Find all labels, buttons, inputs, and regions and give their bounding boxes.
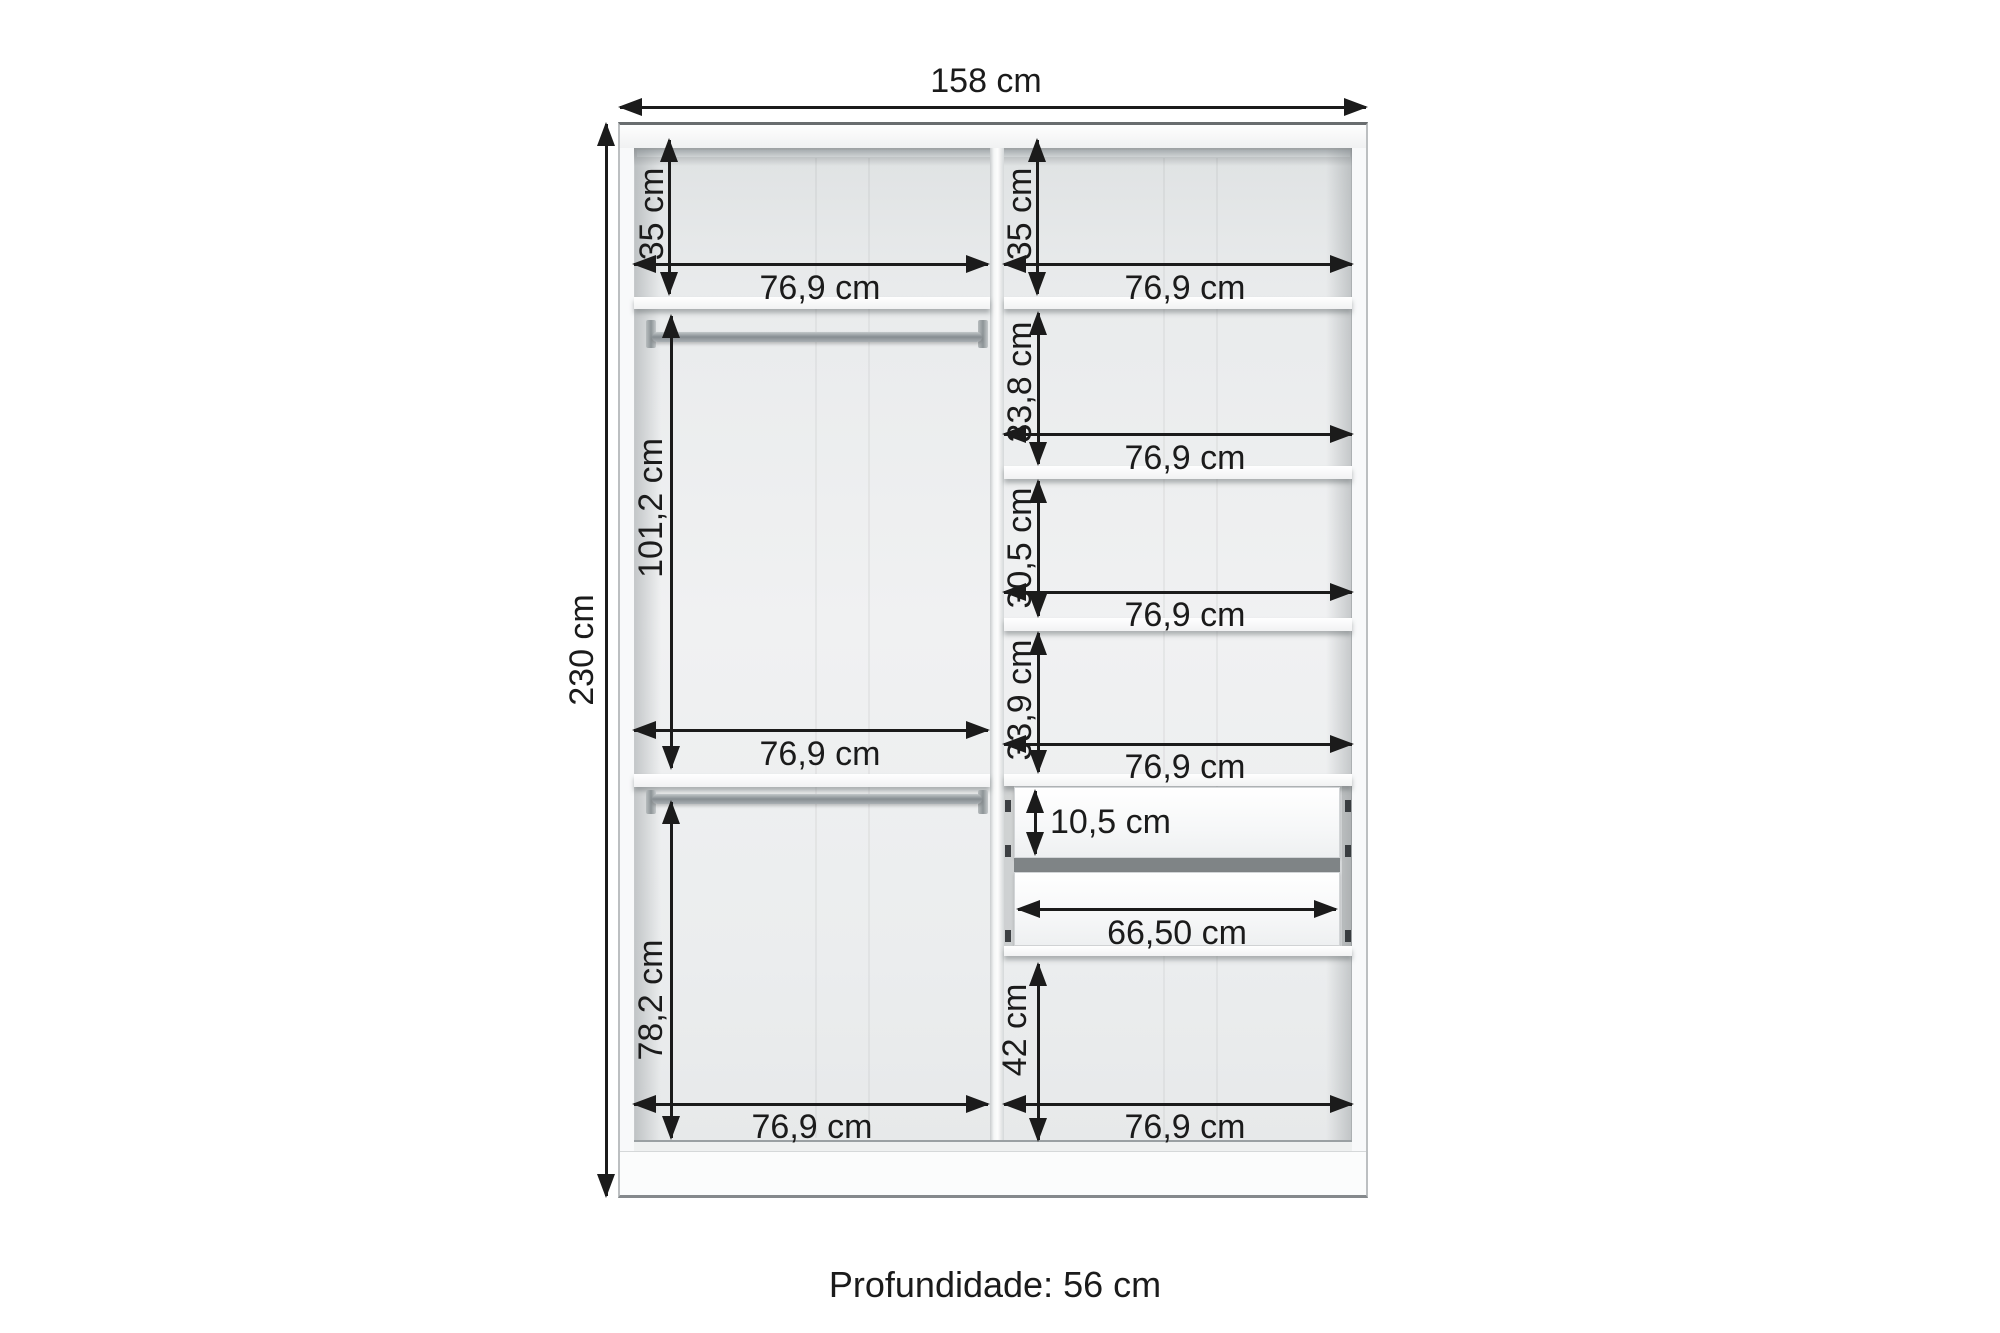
drawer-rail-mark xyxy=(1005,845,1011,857)
dim-arrow-right-sec4-width xyxy=(1004,743,1352,746)
dim-label-overall-width: 158 cm xyxy=(930,64,1042,98)
drawer-rail-mark xyxy=(1345,800,1351,812)
cabinet-plinth xyxy=(620,1151,1366,1195)
dim-label-right-top-width: 76,9 cm xyxy=(1125,271,1246,305)
dim-arrow-drawer-width xyxy=(1018,908,1336,911)
left-middle-shelf xyxy=(634,774,990,787)
dim-label-right-sec3-height: 30,5 cm xyxy=(1003,488,1037,609)
dim-arrow-right-top-width xyxy=(1004,263,1352,266)
dim-label-right-sec4-width: 76,9 cm xyxy=(1125,750,1246,784)
dim-arrow-drawer-front-height xyxy=(1034,791,1037,854)
dim-arrow-right-bottom-width xyxy=(1004,1103,1352,1106)
drawer-rail-mark xyxy=(1345,930,1351,942)
depth-note: Profundidade: 56 cm xyxy=(829,1264,1161,1306)
drawer-rail-mark xyxy=(1005,930,1011,942)
dim-label-right-sec4-height: 33,9 cm xyxy=(1003,640,1037,761)
lower-hanging-rod xyxy=(652,794,982,804)
drawer-rail-mark xyxy=(1005,800,1011,812)
dim-label-left-lower-height: 78,2 cm xyxy=(634,940,668,1061)
dim-label-left-hanging-height: 101,2 cm xyxy=(634,438,668,578)
dim-arrow-left-top-width xyxy=(634,263,988,266)
dim-label-right-sec2-width: 76,9 cm xyxy=(1125,441,1246,475)
dim-label-right-sec2-height: 33,8 cm xyxy=(1003,322,1037,443)
dim-label-right-sec3-width: 76,9 cm xyxy=(1125,598,1246,632)
dim-arrow-right-lower-height xyxy=(1037,964,1040,1140)
dim-label-right-bottom-width: 76,9 cm xyxy=(1125,1110,1246,1144)
dim-arrow-left-lower-height xyxy=(670,802,673,1138)
dim-arrow-left-hanging-height xyxy=(670,316,673,768)
dim-label-left-middle-width: 76,9 cm xyxy=(760,737,881,771)
cabinet-top-panel xyxy=(620,125,1366,148)
dim-label-left-top-width: 76,9 cm xyxy=(760,271,881,305)
dim-label-left-bottom-width: 76,9 cm xyxy=(752,1110,873,1144)
dim-arrow-right-sec2-width xyxy=(1004,433,1352,436)
dim-arrow-left-bottom-width xyxy=(634,1103,988,1106)
dim-arrow-left-middle-width xyxy=(634,729,988,732)
dim-label-right-lower-height: 42 cm xyxy=(998,984,1032,1077)
dim-label-drawer-width: 66,50 cm xyxy=(1107,916,1247,950)
dim-label-overall-height: 230 cm xyxy=(565,594,599,706)
dim-arrow-overall-height xyxy=(605,124,608,1196)
dim-label-left-top-height: 35 cm xyxy=(635,168,669,261)
dim-label-right-top-height: 35 cm xyxy=(1003,168,1037,261)
dim-arrow-right-sec3-width xyxy=(1004,591,1352,594)
upper-hanging-rod xyxy=(652,332,982,342)
dim-label-drawer-front-height: 10,5 cm xyxy=(1050,805,1171,839)
wardrobe-dimension-diagram: 158 cm 230 cm 35 cm 76,9 cm 101,2 cm 76,… xyxy=(0,0,2000,1333)
dim-arrow-overall-width xyxy=(620,106,1366,109)
drawer-rail-mark xyxy=(1345,845,1351,857)
drawer-gap xyxy=(1014,858,1340,872)
